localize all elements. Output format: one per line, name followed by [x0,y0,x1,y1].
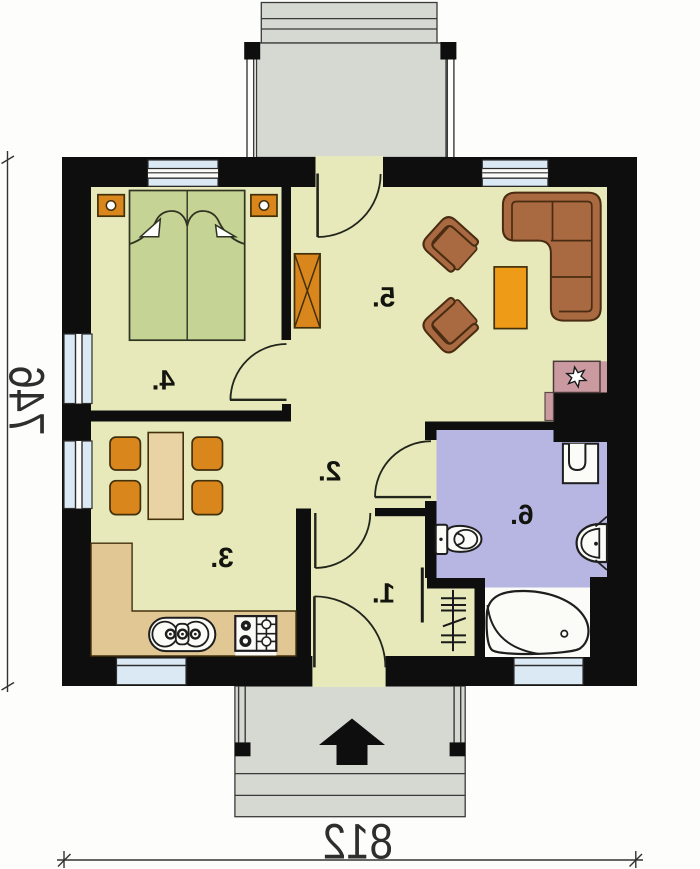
svg-text:1.: 1. [372,578,395,609]
svg-text:746: 746 [0,365,55,435]
svg-text:3.: 3. [210,542,233,573]
svg-text:5.: 5. [372,282,395,313]
svg-text:2.: 2. [318,455,341,486]
svg-text:4.: 4. [152,364,175,395]
svg-text:812: 812 [323,814,393,869]
svg-text:6.: 6. [510,499,533,530]
